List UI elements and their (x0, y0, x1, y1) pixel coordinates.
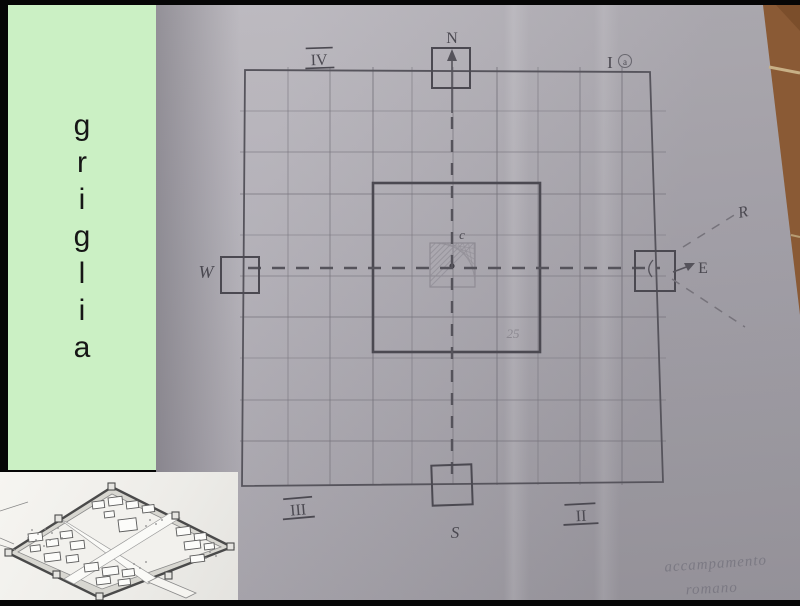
caption-romano: romano (685, 580, 738, 599)
caption-accampamento: accampamento (664, 552, 768, 575)
camp-building (92, 501, 105, 509)
title-letter: a (8, 329, 156, 366)
label-north: N (446, 30, 458, 47)
label-quadrant-I: I a (607, 53, 631, 72)
hatch-line (430, 243, 452, 265)
gate-east-mark (649, 260, 653, 277)
sketch-photo: N S W E IV I a III II (156, 5, 800, 600)
camp-building (84, 562, 99, 572)
tree-dot (209, 551, 211, 553)
label-center-c: c (459, 227, 465, 242)
label-east: E (698, 260, 708, 277)
camp-building (108, 496, 123, 506)
camp-building (102, 566, 119, 576)
title-letter: i (8, 181, 156, 218)
tree-dot (49, 539, 51, 541)
label-quadrant-IV: IV (305, 47, 335, 69)
tree-dot (43, 545, 45, 547)
camp-building (104, 511, 115, 518)
sketch-drawing: N S W E IV I a III II (156, 5, 800, 600)
title-letter: g (8, 218, 156, 255)
hatch-line (430, 243, 441, 254)
tree-dot (139, 567, 141, 569)
camp-tower (172, 512, 179, 519)
label-25: 25 (507, 326, 521, 341)
camp-building (204, 543, 215, 550)
tree-dot (133, 563, 135, 565)
svg-text:a: a (623, 57, 627, 67)
camp-tower (5, 549, 12, 556)
camp-tower (227, 543, 234, 550)
slide: N S W E IV I a III II (0, 0, 800, 606)
camp-building (30, 545, 41, 552)
tree-dot (149, 519, 151, 521)
camp-tower (96, 593, 103, 600)
tree-dot (61, 537, 63, 539)
title-letter: r (8, 144, 156, 181)
camp-building (66, 555, 79, 563)
camp-building (194, 533, 207, 541)
camp-building (118, 579, 131, 586)
ray-upper-dashed (683, 212, 739, 247)
camp-building (190, 554, 205, 563)
tree-dot (215, 555, 217, 557)
east-arrow-icon (673, 263, 695, 272)
camp-building (122, 569, 135, 577)
camp-building (176, 526, 191, 536)
title-letter: l (8, 255, 156, 292)
gate-west (221, 257, 259, 293)
tree-dot (145, 525, 147, 527)
label-quadrant-II: II (562, 503, 598, 526)
title-letter: i (8, 292, 156, 329)
svg-text:IV: IV (310, 52, 328, 70)
label-west: W (199, 262, 216, 282)
camp-building (70, 540, 85, 550)
label-quadrant-III: III (281, 497, 315, 521)
hatch-line (430, 243, 436, 249)
label-ray-r: R (736, 203, 750, 222)
tree-dot (205, 557, 207, 559)
tree-dot (51, 532, 53, 534)
camp-tower (165, 572, 172, 579)
floor-tiles (763, 5, 800, 315)
svg-text:I: I (607, 53, 613, 72)
camp-road-exit (148, 577, 196, 598)
camp-building (118, 518, 137, 532)
camp-building (44, 552, 61, 562)
north-arrow-icon (447, 49, 457, 113)
title-letter: g (8, 107, 156, 144)
roman-camp-illustration (0, 472, 238, 600)
camp-tower (108, 483, 115, 490)
camp-building (142, 505, 155, 513)
camp-building (46, 539, 59, 547)
camp-building (126, 501, 139, 509)
tree-dot (35, 539, 37, 541)
camp-tower (55, 515, 62, 522)
svg-text:II: II (575, 508, 587, 526)
tree-dot (31, 529, 33, 531)
tile-wedge (763, 5, 800, 315)
tree-dot (145, 561, 147, 563)
camp-building (184, 540, 201, 550)
ray-lower-dashed (672, 279, 745, 327)
label-south: S (451, 523, 460, 542)
tree-dot (27, 537, 29, 539)
tree-dot (161, 519, 163, 521)
roman-camp-inset-image (0, 472, 238, 600)
title-banner: g r i g l i a (8, 5, 156, 470)
tree-dot (57, 527, 59, 529)
tree-dot (44, 528, 46, 530)
tree-dot (37, 533, 39, 535)
camp-building (96, 576, 111, 585)
camp-tower (53, 571, 60, 578)
tree-dot (155, 523, 157, 525)
